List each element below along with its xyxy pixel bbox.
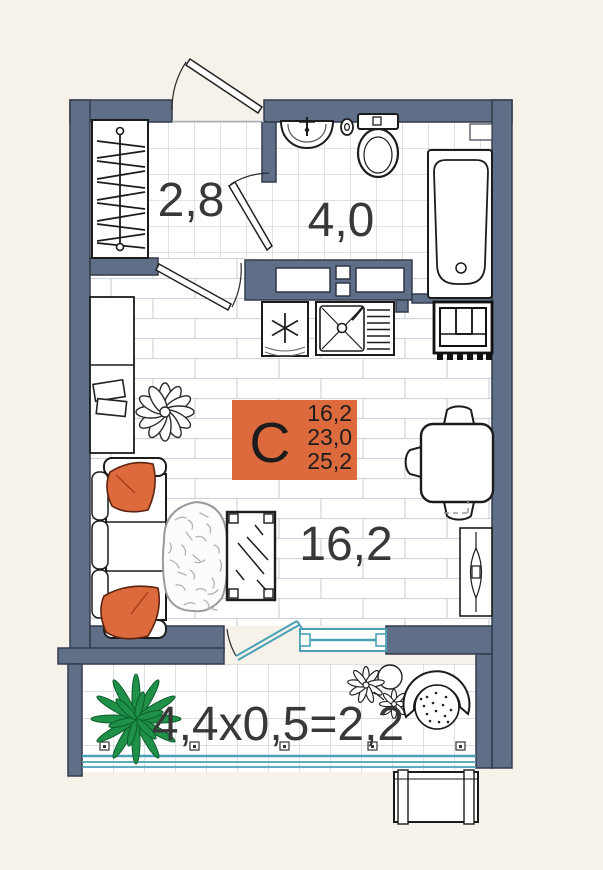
cabinet-icon (90, 297, 134, 453)
hob-icon (262, 302, 308, 356)
pillow-icon (101, 586, 159, 639)
living-room-area-label: 16,2 (299, 518, 392, 571)
hallway-area-label: 2,8 (158, 174, 225, 227)
badge-value-1: 16,2 (307, 400, 352, 426)
badge-value-3: 25,2 (307, 448, 352, 474)
chair-icon (444, 502, 474, 520)
chair-icon (406, 447, 421, 477)
toilet-icon (358, 114, 398, 177)
balcony-formula-label: 4,4х0,5=2,2 (152, 698, 404, 751)
coffee-table-icon (227, 512, 275, 600)
pillow-icon (107, 463, 155, 512)
badge-value-2: 23,0 (307, 424, 352, 450)
wardrobe-icon (92, 120, 148, 258)
door-stop-icon (341, 119, 353, 135)
ac-unit-icon (394, 770, 478, 824)
floor-plan-canvas: С 16,2 23,0 25,2 2,8 4,0 16,2 4,4х0,5=2,… (0, 0, 603, 870)
area-badge: С 16,2 23,0 25,2 (232, 400, 357, 480)
rug-icon (163, 502, 228, 611)
bathtub-icon (428, 150, 492, 298)
floor-plan: С 16,2 23,0 25,2 2,8 4,0 16,2 4,4х0,5=2,… (0, 0, 603, 870)
wall-niche (470, 124, 492, 140)
stove-icon (434, 302, 492, 360)
chair-icon (444, 406, 474, 424)
bathroom-area-label: 4,0 (308, 194, 375, 247)
balcony-window (300, 629, 386, 651)
badge-letter: С (249, 411, 290, 475)
kitchen-sink-icon (316, 302, 394, 355)
